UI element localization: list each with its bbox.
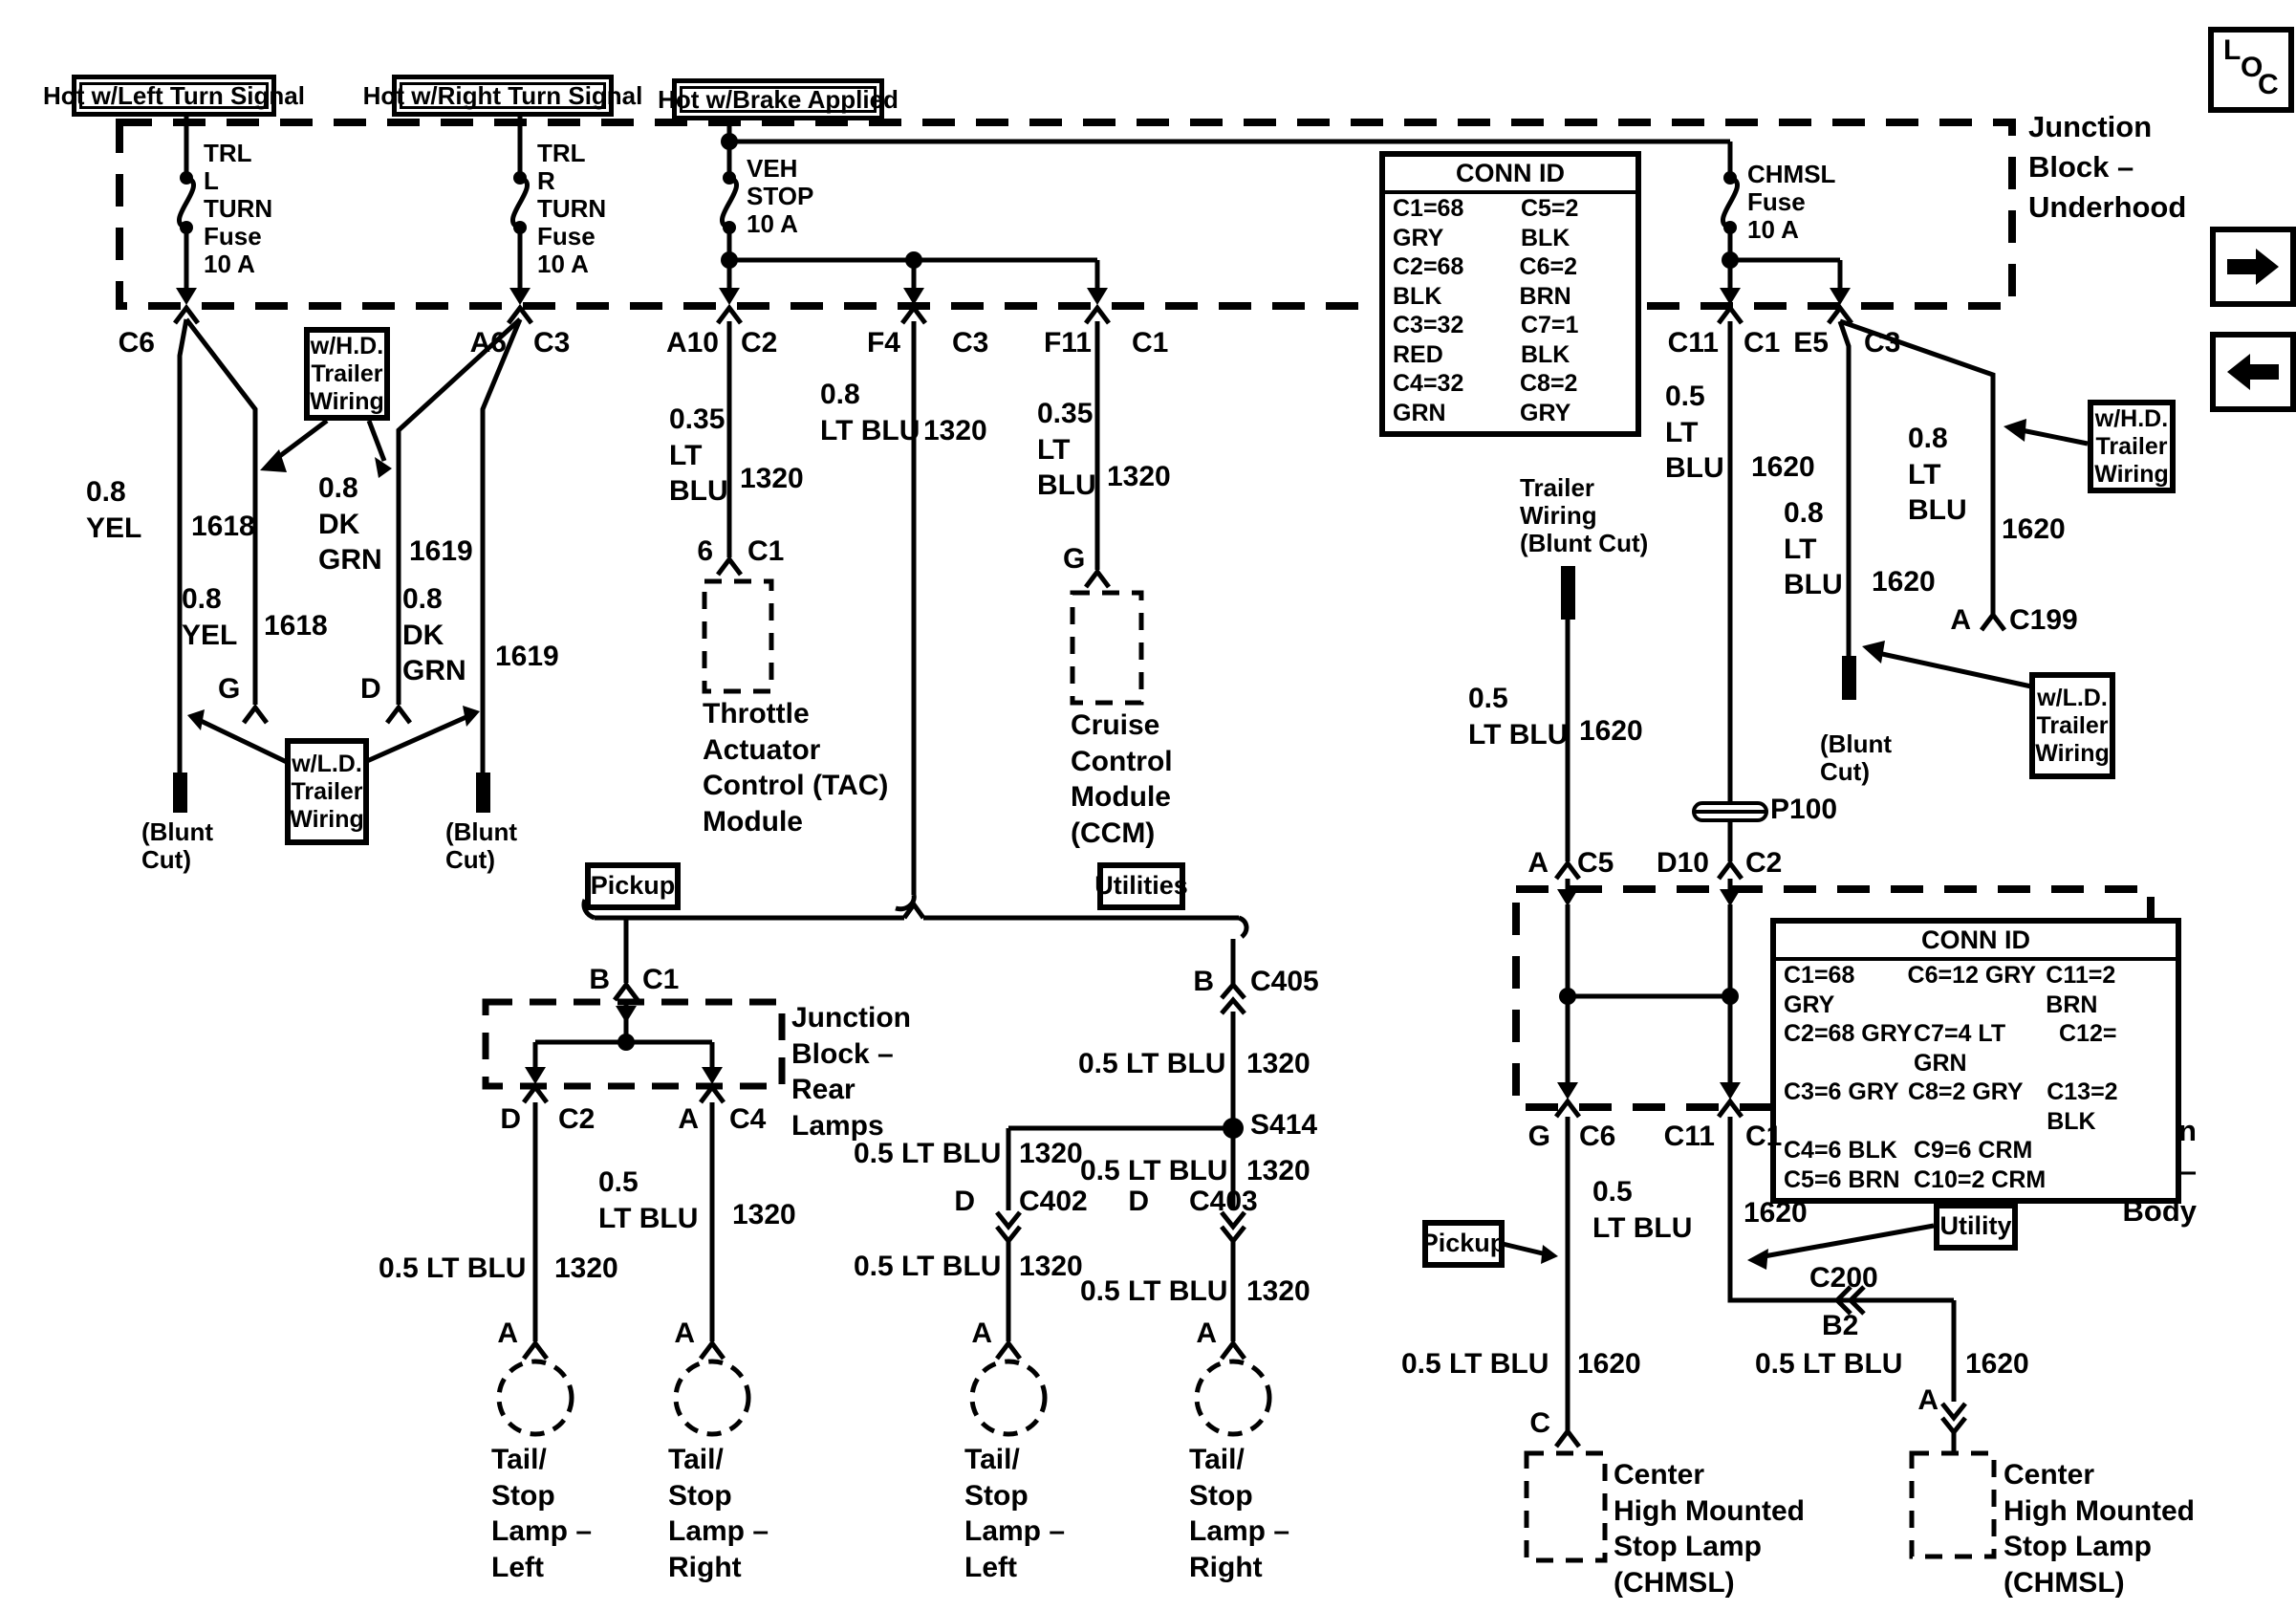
conn-id-row: C5=6 BRNC10=2 CRM xyxy=(1776,1165,2176,1199)
circuit-1618a: 1618 xyxy=(191,509,255,545)
circuit-1620e: 1620 xyxy=(1577,1346,1641,1382)
pin-label-d-left: D xyxy=(360,671,381,708)
tail-lamp-right-label: Tail/ Stop Lamp – Right xyxy=(668,1442,769,1585)
splice-label-s414: S414 xyxy=(1250,1107,1317,1143)
chmsl-left-box xyxy=(1527,1453,1605,1560)
ccm-module-label: Cruise Control Module (CCM) xyxy=(1071,708,1173,851)
wire-label-05-c405: 0.5 LT BLU xyxy=(1078,1046,1225,1082)
conn-id-row: C1=68 GRYC6=12 GRYC11=2 BRN xyxy=(1776,961,2176,1019)
fuse-veh-stop-label: VEH STOP 10 A xyxy=(747,155,813,238)
pin-label-e5: E5 xyxy=(1776,325,1829,361)
trailer-wiring-blunt-label: Trailer Wiring (Blunt Cut) xyxy=(1520,474,1648,557)
conn-id-row: C3=6 GRYC8=2 GRYC13=2 BLK xyxy=(1776,1078,2176,1136)
conn-label-c405: C405 xyxy=(1250,964,1319,1000)
wire-label-08-c199: 0.8 LT BLU xyxy=(1908,421,1967,529)
conn-id-table-body: CONN ID C1=68 GRYC6=12 GRYC11=2 BRN C2=6… xyxy=(1770,918,2181,1204)
chmsl-right-box xyxy=(1912,1453,1994,1557)
circuit-1620a: 1620 xyxy=(1751,449,1815,486)
circuit-1320b: 1320 xyxy=(923,413,987,449)
wire-label-dkgrn-1: 0.8 DK GRN xyxy=(318,470,382,578)
conn-label-c200: C200 xyxy=(1809,1260,1878,1296)
pin-label-a-c5: A xyxy=(1516,845,1549,882)
circuit-1320c: 1320 xyxy=(1107,459,1171,495)
pin-label-d10: D10 xyxy=(1646,845,1709,882)
conn-label-c1: C1 xyxy=(1132,325,1168,361)
wire-label-05-c402t: 0.5 LT BLU xyxy=(854,1136,1001,1172)
conn-label-c4: C4 xyxy=(729,1101,766,1138)
tail-stop-lamp-left2-symbol xyxy=(972,1361,1045,1434)
tac-module-box xyxy=(704,581,771,691)
jb-rear-lamps-label: Junction Block – Rear Lamps xyxy=(791,1000,911,1143)
circuit-1620b: 1620 xyxy=(1579,713,1643,750)
wire-label-dkgrn-2: 0.8 DK GRN xyxy=(402,581,466,689)
circuit-1320f: 1320 xyxy=(1246,1046,1310,1082)
tail-stop-lamp-right-symbol xyxy=(676,1361,748,1434)
wire-label-08-blunt: 0.8 LT BLU xyxy=(1784,495,1843,603)
whd-trailer-wiring-callout-left: w/H.D. Trailer Wiring xyxy=(304,327,390,421)
ccm-module-box xyxy=(1072,593,1141,703)
pin-label-g-c6: G xyxy=(1518,1119,1550,1155)
conn-id-title: CONN ID xyxy=(1385,157,1635,194)
blunt-cut-label-2: (Blunt Cut) xyxy=(445,818,517,874)
power-label-brake: Hot w/Brake Applied xyxy=(680,86,877,113)
circuit-1620d: 1620 xyxy=(2002,512,2066,548)
next-page-button[interactable] xyxy=(2210,227,2296,307)
power-box-left-turn: Hot w/Left Turn Signal xyxy=(72,75,276,117)
circuit-1320j: 1320 xyxy=(1246,1274,1310,1310)
wire-label-yel-2: 0.8 YEL xyxy=(182,581,237,653)
circuit-1320e: 1320 xyxy=(732,1197,796,1233)
wire-label-05-trailer: 0.5 LT BLU xyxy=(1468,681,1568,752)
fuse-trl-r-label: TRL R TURN Fuse 10 A xyxy=(537,140,606,279)
conn-label-c2: C2 xyxy=(741,325,777,361)
conn-label-c2-p100: C2 xyxy=(1745,845,1782,882)
pin-label-b-rear: B xyxy=(579,962,610,998)
pin-label-f11: F11 xyxy=(1032,325,1092,361)
tail-stop-lamp-right2-symbol xyxy=(1197,1361,1269,1434)
power-box-brake: Hot w/Brake Applied xyxy=(672,78,884,120)
pin-label-a-c199: A xyxy=(1939,602,1971,639)
circuit-1320h: 1320 xyxy=(1019,1249,1083,1285)
chmsl-left-label: Center High Mounted Stop Lamp (CHMSL) xyxy=(1614,1457,1805,1600)
pin-label-a-lamp2: A xyxy=(662,1316,695,1352)
circuit-1620g: 1620 xyxy=(1965,1346,2029,1382)
conn-label-c6: C6 xyxy=(88,325,155,361)
wld-right-arrow xyxy=(1874,652,2031,686)
circuit-1618b: 1618 xyxy=(264,608,328,644)
wire-label-05-a: 0.5 LT BLU xyxy=(598,1165,698,1236)
pickup-callout-right: Pickup xyxy=(1422,1220,1505,1268)
splice-s414 xyxy=(1223,1118,1244,1139)
wld-trailer-wiring-callout-left: w/L.D. Trailer Wiring xyxy=(285,738,369,845)
wire-label-08-f4: 0.8 LT BLU xyxy=(820,377,920,448)
whd-left-arrow2 xyxy=(369,421,384,461)
pickup-right-arrow xyxy=(1503,1244,1547,1254)
conn-id-row: C1=68 GRYC5=2 BLK xyxy=(1385,194,1635,252)
conn-id-row: C2=68 GRYC7=4 LT GRNC12= xyxy=(1776,1019,2176,1078)
pin-label-c11-body: C11 xyxy=(1638,1119,1715,1155)
pin-label-c11: C11 xyxy=(1646,325,1719,361)
pin-label-a-lamp4: A xyxy=(1184,1316,1217,1352)
wld-trailer-wiring-callout-right: w/L.D. Trailer Wiring xyxy=(2029,672,2115,779)
conn-label-c2-rear: C2 xyxy=(558,1101,595,1138)
wiring-diagram: Hot w/Left Turn Signal Hot w/Right Turn … xyxy=(0,0,2296,1611)
pin-label-a6: A6 xyxy=(451,325,507,361)
whd-trailer-wiring-callout-right: w/H.D. Trailer Wiring xyxy=(2088,400,2176,493)
blunt-cut-left2 xyxy=(476,773,490,813)
conn-label-c403: C403 xyxy=(1189,1184,1258,1220)
circuit-1320a: 1320 xyxy=(740,461,804,497)
conn-label-c6-body: C6 xyxy=(1579,1119,1615,1155)
conn-label-c3: C3 xyxy=(533,325,570,361)
blunt-cut-trailer xyxy=(1561,566,1575,620)
wire-label-05-gc6: 0.5 LT BLU xyxy=(1401,1346,1549,1382)
pin-label-d-c403: D xyxy=(1116,1184,1149,1220)
conn-label-c402: C402 xyxy=(1019,1184,1088,1220)
wire-label-05-main: 0.5 LT BLU xyxy=(1665,379,1724,487)
wld-left-arrow xyxy=(199,720,289,763)
blunt-cut-right xyxy=(1842,656,1856,700)
conn-label-c5: C5 xyxy=(1577,845,1614,882)
conn-label-c199: C199 xyxy=(2009,602,2078,639)
blunt-cut-label-1: (Blunt Cut) xyxy=(141,818,213,874)
wire-label-05-c200: 0.5 LT BLU xyxy=(1592,1174,1692,1246)
conn-label-c1-body: C1 xyxy=(1745,1119,1782,1155)
wld-left-arrow2 xyxy=(367,716,468,761)
circuit-1620c: 1620 xyxy=(1872,564,1936,600)
loc-badge: L O C xyxy=(2208,27,2294,113)
pin-label-a10: A10 xyxy=(660,325,719,361)
pin-label-g-left: G xyxy=(218,671,240,708)
wire-label-035-a10: 0.35 LT BLU xyxy=(669,402,728,510)
chmsl-right-label: Center High Mounted Stop Lamp (CHMSL) xyxy=(2004,1457,2195,1600)
prev-page-button[interactable] xyxy=(2210,332,2296,412)
pin-label-d-c402: D xyxy=(942,1184,975,1220)
fuse-chmsl-label: CHMSL Fuse 10 A xyxy=(1747,161,1835,244)
conn-id-table-underhood: CONN ID C1=68 GRYC5=2 BLK C2=68 BLKC6=2 … xyxy=(1379,151,1641,437)
loc-letter-l: L xyxy=(2223,34,2241,67)
tail-stop-lamp-left-symbol xyxy=(499,1361,572,1434)
blunt-cut-left1 xyxy=(173,773,187,813)
whd-right-arrow xyxy=(2017,429,2088,444)
conn-label-p100: P100 xyxy=(1770,792,1837,828)
conn-id-title: CONN ID xyxy=(1776,924,2176,961)
loc-letter-c: C xyxy=(2258,69,2279,101)
circuit-1619a: 1619 xyxy=(409,533,473,570)
circuit-1619b: 1619 xyxy=(495,639,559,675)
wire-label-yel-1: 0.8 YEL xyxy=(86,474,141,546)
pin-label-d-c2: D xyxy=(490,1101,521,1138)
conn-id-row: C3=32 REDC7=1 BLK xyxy=(1385,311,1635,369)
circuit-1320d: 1320 xyxy=(554,1251,618,1287)
tail-lamp-right2-label: Tail/ Stop Lamp – Right xyxy=(1189,1442,1289,1585)
circuit-1320g: 1320 xyxy=(1019,1136,1083,1172)
wire-label-05-c402b: 0.5 LT BLU xyxy=(854,1249,1001,1285)
utilities-callout: Utilities xyxy=(1097,862,1185,910)
conn-id-row: C4=32 GRNC8=2 GRY xyxy=(1385,369,1635,431)
conn-id-row: C4=6 BLKC9=6 CRM xyxy=(1776,1136,2176,1165)
tac-module-label: Throttle Actuator Control (TAC) Module xyxy=(703,696,888,839)
blunt-cut-label-3: (Blunt Cut) xyxy=(1820,730,1892,786)
power-label-left-turn: Hot w/Left Turn Signal xyxy=(79,82,269,109)
power-box-right-turn: Hot w/Right Turn Signal xyxy=(392,75,614,117)
jb-underhood-label: Junction Block – Underhood xyxy=(2028,107,2186,228)
conn-label-c1b: C1 xyxy=(1744,325,1780,361)
pin-label-6: 6 xyxy=(686,533,713,570)
left-arrow-icon xyxy=(2216,337,2290,406)
pin-label-a-chmslr: A xyxy=(1906,1382,1939,1419)
wire-label-05-d: 0.5 LT BLU xyxy=(379,1251,526,1287)
pin-label-b-c405: B xyxy=(1180,964,1214,1000)
pin-label-c-chmsll: C xyxy=(1518,1405,1550,1442)
wire-label-05-c403b: 0.5 LT BLU xyxy=(1080,1274,1227,1310)
pickup-callout-mid: Pickup xyxy=(585,862,681,910)
right-arrow-icon xyxy=(2216,232,2290,301)
pin-label-f4: F4 xyxy=(841,325,900,361)
pin-label-b2: B2 xyxy=(1822,1308,1858,1344)
power-label-right-turn: Hot w/Right Turn Signal xyxy=(400,82,606,109)
wire-label-035-f11: 0.35 LT BLU xyxy=(1037,396,1096,504)
tail-lamp-left-label: Tail/ Stop Lamp – Left xyxy=(491,1442,592,1585)
tail-lamp-left2-label: Tail/ Stop Lamp – Left xyxy=(964,1442,1065,1585)
pin-label-a-lamp3: A xyxy=(960,1316,992,1352)
pin-label-a-lamp1: A xyxy=(486,1316,518,1352)
utility-callout: Utility xyxy=(1934,1203,2018,1251)
conn-id-row: C2=68 BLKC6=2 BRN xyxy=(1385,252,1635,311)
pin-label-g-ccm: G xyxy=(1063,541,1085,577)
conn-label-c3b: C3 xyxy=(952,325,988,361)
conn-label-c1-rear: C1 xyxy=(642,962,679,998)
fuse-trl-l-label: TRL L TURN Fuse 10 A xyxy=(204,140,272,279)
pin-label-a-c4: A xyxy=(670,1101,699,1138)
conn-label-c1-tac: C1 xyxy=(747,533,784,570)
circuit-1620f: 1620 xyxy=(1744,1195,1808,1231)
conn-label-c3c: C3 xyxy=(1864,325,1900,361)
wire-label-05-chmslr: 0.5 LT BLU xyxy=(1755,1346,1902,1382)
